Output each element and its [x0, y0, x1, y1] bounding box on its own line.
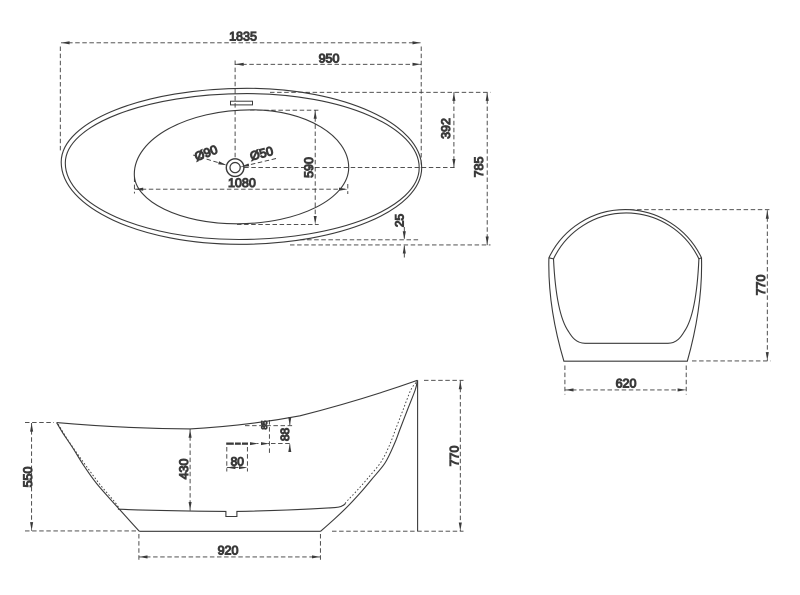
svg-text:1835: 1835 — [229, 29, 257, 43]
svg-text:1080: 1080 — [228, 176, 256, 190]
svg-text:950: 950 — [319, 52, 340, 66]
svg-text:85: 85 — [260, 420, 269, 429]
svg-text:785: 785 — [472, 157, 486, 178]
svg-text:25: 25 — [392, 214, 406, 228]
svg-text:88: 88 — [278, 428, 292, 442]
svg-text:Ø50: Ø50 — [248, 144, 274, 164]
svg-text:430: 430 — [177, 459, 191, 480]
svg-text:770: 770 — [754, 275, 768, 296]
svg-text:Ø90: Ø90 — [193, 142, 220, 164]
svg-text:620: 620 — [616, 377, 637, 391]
svg-text:550: 550 — [21, 467, 35, 488]
svg-text:590: 590 — [302, 157, 316, 178]
svg-text:920: 920 — [218, 543, 239, 557]
svg-text:392: 392 — [439, 118, 453, 139]
svg-text:80: 80 — [231, 455, 245, 469]
svg-text:770: 770 — [447, 446, 461, 467]
